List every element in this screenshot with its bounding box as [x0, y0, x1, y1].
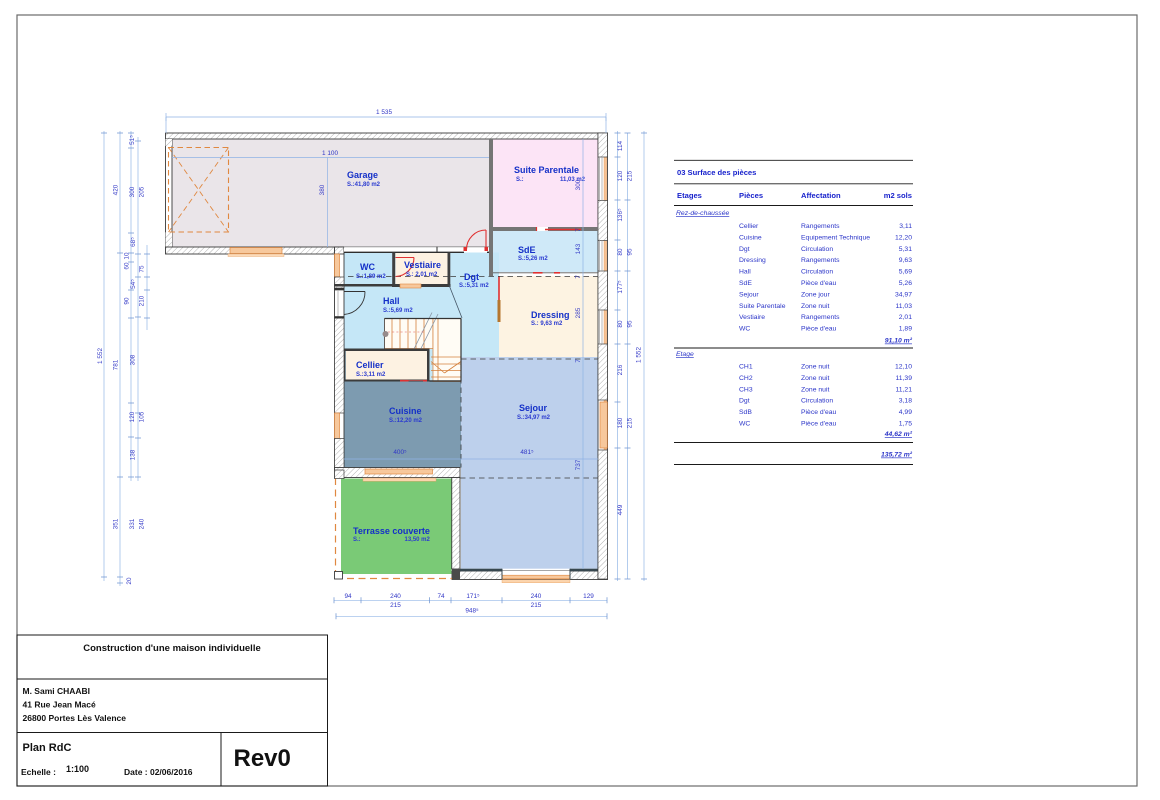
svg-text:Terrasse couverte: Terrasse couverte	[353, 526, 430, 536]
svg-text:11,03: 11,03	[895, 303, 912, 310]
svg-text:Sejour: Sejour	[739, 291, 759, 298]
svg-text:Dressing: Dressing	[739, 257, 766, 264]
svg-text:1 535: 1 535	[376, 109, 392, 116]
svg-text:Rev0: Rev0	[234, 745, 291, 772]
svg-text:S.:: S.:	[516, 177, 524, 183]
svg-text:1 552: 1 552	[97, 348, 104, 364]
svg-text:Rangements: Rangements	[801, 223, 840, 230]
svg-text:S.: 9,63 m2: S.: 9,63 m2	[531, 321, 563, 327]
svg-text:Vestiaire: Vestiaire	[739, 314, 765, 321]
svg-text:11,21: 11,21	[895, 386, 912, 393]
svg-text:Date : 02/06/2016: Date : 02/06/2016	[124, 767, 193, 777]
svg-text:3,11: 3,11	[899, 223, 912, 230]
svg-text:Cellier: Cellier	[739, 223, 759, 230]
svg-text:13,50 m2: 13,50 m2	[405, 537, 431, 543]
svg-text:Pièce d'eau: Pièce d'eau	[801, 421, 837, 428]
svg-text:Zone nuit: Zone nuit	[801, 303, 829, 310]
svg-text:4,99: 4,99	[899, 409, 912, 416]
svg-text:Hall: Hall	[383, 296, 400, 306]
svg-text:285: 285	[575, 307, 582, 318]
svg-text:240: 240	[139, 518, 146, 529]
svg-text:CH2: CH2	[739, 375, 753, 382]
svg-text:2,01: 2,01	[899, 314, 912, 321]
svg-text:420: 420	[113, 184, 120, 195]
svg-text:138: 138	[130, 449, 137, 460]
svg-text:171⁵: 171⁵	[466, 593, 480, 600]
svg-text:143: 143	[575, 243, 582, 254]
svg-text:m2 sols: m2 sols	[884, 191, 912, 200]
svg-text:205: 205	[139, 186, 146, 197]
svg-text:114: 114	[617, 140, 624, 151]
svg-text:781: 781	[113, 359, 120, 370]
svg-text:215: 215	[627, 170, 634, 181]
svg-text:S.:1,89 m2: S.:1,89 m2	[356, 274, 386, 280]
svg-text:Affectation: Affectation	[801, 191, 841, 200]
svg-text:449: 449	[617, 504, 624, 515]
svg-text:Etage: Etage	[676, 351, 694, 358]
svg-text:240: 240	[531, 593, 542, 600]
svg-text:5,31: 5,31	[899, 246, 912, 253]
svg-text:Plan RdC: Plan RdC	[23, 742, 72, 754]
svg-text:12,10: 12,10	[895, 364, 912, 371]
svg-text:Zone jour: Zone jour	[801, 291, 830, 298]
svg-text:240: 240	[390, 593, 401, 600]
svg-text:9,63: 9,63	[899, 257, 912, 264]
svg-text:S.:3,11 m2: S.:3,11 m2	[356, 372, 386, 378]
svg-text:WC: WC	[739, 421, 750, 428]
svg-text:7: 7	[575, 359, 582, 363]
svg-text:Circulation: Circulation	[801, 269, 833, 276]
svg-text:51⁵: 51⁵	[129, 135, 136, 145]
svg-text:S.:5,26 m2: S.:5,26 m2	[518, 256, 548, 262]
svg-text:Pièce d'eau: Pièce d'eau	[801, 326, 837, 333]
svg-text:1:100: 1:100	[66, 764, 89, 774]
svg-text:Cellier: Cellier	[356, 360, 384, 370]
svg-text:210: 210	[139, 295, 146, 306]
svg-text:CH1: CH1	[739, 364, 753, 371]
svg-text:20: 20	[126, 577, 133, 585]
svg-text:Rangements: Rangements	[801, 314, 840, 321]
svg-text:215: 215	[531, 602, 542, 609]
svg-text:SdB: SdB	[739, 409, 752, 416]
svg-text:SdE: SdE	[739, 280, 752, 287]
svg-text:Circulation: Circulation	[801, 398, 833, 405]
svg-text:Rez-de-chaussée: Rez-de-chaussée	[676, 210, 729, 217]
svg-text:80: 80	[617, 248, 624, 256]
svg-text:Etages: Etages	[677, 191, 702, 200]
svg-text:135,72 m²: 135,72 m²	[881, 452, 913, 459]
svg-text:Zone nuit: Zone nuit	[801, 386, 829, 393]
svg-text:Zone nuit: Zone nuit	[801, 364, 829, 371]
svg-text:215: 215	[390, 602, 401, 609]
svg-text:Pièce d'eau: Pièce d'eau	[801, 280, 837, 287]
svg-text:SdE: SdE	[518, 245, 536, 255]
svg-text:68⁵: 68⁵	[130, 237, 137, 247]
svg-text:Dgt: Dgt	[464, 272, 479, 282]
svg-text:60: 60	[124, 262, 131, 270]
svg-text:Cuisine: Cuisine	[739, 234, 762, 241]
svg-text:308: 308	[130, 354, 137, 365]
svg-text:120: 120	[617, 170, 624, 181]
svg-text:34,97: 34,97	[895, 291, 912, 298]
svg-text:75: 75	[139, 265, 146, 273]
svg-text:7: 7	[575, 275, 582, 279]
svg-text:351: 351	[113, 518, 120, 529]
svg-text:120: 120	[129, 411, 136, 422]
svg-text:216: 216	[617, 364, 624, 375]
svg-text:Suite Parentale: Suite Parentale	[514, 165, 579, 175]
svg-text:Dressing: Dressing	[531, 310, 570, 320]
svg-text:Dgt: Dgt	[739, 246, 750, 253]
svg-text:481⁵: 481⁵	[520, 449, 534, 456]
svg-text:177⁵: 177⁵	[617, 280, 624, 294]
svg-text:S.:5,69 m2: S.:5,69 m2	[383, 308, 413, 314]
svg-text:Circulation: Circulation	[801, 246, 833, 253]
svg-text:300: 300	[129, 186, 136, 197]
svg-text:1,89: 1,89	[899, 326, 912, 333]
svg-text:S.:5,31 m2: S.:5,31 m2	[459, 283, 489, 289]
svg-text:Dgt: Dgt	[739, 398, 750, 405]
svg-text:11,39: 11,39	[895, 375, 912, 382]
svg-text:Vestiaire: Vestiaire	[404, 260, 441, 270]
svg-text:74: 74	[437, 593, 445, 600]
svg-text:Garage: Garage	[347, 170, 378, 180]
svg-text:CH3: CH3	[739, 386, 753, 393]
svg-text:95: 95	[627, 320, 634, 328]
svg-text:03 Surface des pièces: 03 Surface des pièces	[677, 168, 756, 177]
svg-text:80: 80	[617, 320, 624, 328]
svg-text:Hall: Hall	[739, 269, 751, 276]
svg-text:26800 Portes Lès Valence: 26800 Portes Lès Valence	[23, 713, 127, 723]
svg-text:Construction d'une maison indi: Construction d'une maison individuelle	[83, 643, 261, 654]
svg-text:41 Rue Jean Macé: 41 Rue Jean Macé	[23, 700, 97, 710]
svg-text:S.:12,20 m2: S.:12,20 m2	[389, 418, 423, 424]
svg-text:WC: WC	[360, 262, 375, 272]
svg-text:S.: 2,01 m2: S.: 2,01 m2	[406, 272, 438, 278]
svg-text:Rangements: Rangements	[801, 257, 840, 264]
svg-text:948⁵: 948⁵	[465, 607, 479, 614]
svg-text:Pièce d'eau: Pièce d'eau	[801, 409, 837, 416]
svg-text:380: 380	[319, 184, 326, 195]
svg-text:7: 7	[575, 228, 582, 232]
svg-text:WC: WC	[739, 326, 750, 333]
svg-text:180: 180	[617, 417, 624, 428]
svg-text:1,75: 1,75	[899, 421, 912, 428]
svg-text:737: 737	[575, 459, 582, 470]
svg-text:331: 331	[129, 518, 136, 529]
svg-text:54⁵: 54⁵	[130, 279, 137, 289]
svg-text:400⁵: 400⁵	[393, 449, 407, 456]
svg-text:90: 90	[124, 297, 131, 305]
svg-text:5,69: 5,69	[899, 269, 912, 276]
svg-text:129: 129	[583, 593, 594, 600]
svg-text:S.:: S.:	[353, 537, 361, 543]
svg-text:5,26: 5,26	[899, 280, 912, 287]
svg-text:Zone nuit: Zone nuit	[801, 375, 829, 382]
svg-text:Suite Parentale: Suite Parentale	[739, 303, 786, 310]
svg-text:S.:34,97 m2: S.:34,97 m2	[517, 415, 551, 421]
svg-text:Sejour: Sejour	[519, 403, 548, 413]
svg-text:M. Sami CHAABI: M. Sami CHAABI	[23, 686, 91, 696]
svg-text:12,20: 12,20	[895, 234, 912, 241]
svg-text:3,18: 3,18	[899, 398, 912, 405]
svg-text:215: 215	[627, 417, 634, 428]
svg-text:Cuisine: Cuisine	[389, 406, 422, 416]
svg-text:Equipement Technique: Equipement Technique	[801, 234, 870, 241]
svg-text:91,10 m²: 91,10 m²	[885, 338, 913, 345]
svg-text:10: 10	[124, 252, 131, 260]
svg-text:95: 95	[627, 248, 634, 256]
svg-text:105: 105	[139, 411, 146, 422]
svg-text:Pièces: Pièces	[739, 191, 763, 200]
svg-text:300: 300	[575, 179, 582, 190]
svg-text:S.:41,80 m2: S.:41,80 m2	[347, 182, 381, 188]
svg-text:94: 94	[344, 593, 352, 600]
svg-text:1 552: 1 552	[636, 347, 643, 363]
svg-text:1 100: 1 100	[322, 150, 338, 157]
svg-text:44,62 m²: 44,62 m²	[884, 431, 913, 438]
svg-text:Echelle :: Echelle :	[21, 767, 56, 777]
svg-text:136⁵: 136⁵	[617, 208, 624, 222]
